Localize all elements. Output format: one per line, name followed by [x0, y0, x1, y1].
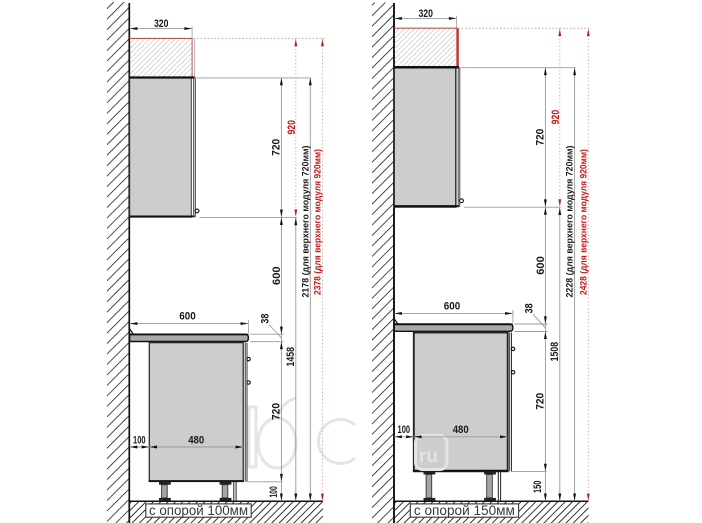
- svg-text:480: 480: [453, 424, 469, 436]
- svg-text:100: 100: [133, 434, 146, 446]
- svg-text:480: 480: [188, 434, 204, 446]
- svg-text:600: 600: [535, 256, 547, 275]
- svg-text:150: 150: [532, 481, 544, 494]
- svg-text:2428 (для верхнего модуля 920м: 2428 (для верхнего модуля 920мм): [579, 149, 589, 295]
- svg-text:38: 38: [524, 303, 536, 313]
- svg-text:720: 720: [534, 129, 546, 146]
- svg-text:920: 920: [550, 110, 562, 125]
- svg-text:2378 (для верхнего модуля 920м: 2378 (для верхнего модуля 920мм): [313, 149, 323, 295]
- svg-text:720: 720: [270, 403, 282, 420]
- svg-text:600: 600: [179, 311, 196, 323]
- svg-text:2178 (для верхнего модуля 720м: 2178 (для верхнего модуля 720мм): [300, 146, 310, 298]
- svg-text:320: 320: [418, 8, 433, 20]
- svg-text:100: 100: [398, 424, 411, 436]
- svg-text:с опорой 100мм: с опорой 100мм: [149, 502, 248, 518]
- svg-text:38: 38: [260, 314, 272, 324]
- svg-text:ru: ru: [419, 446, 438, 467]
- svg-text:920: 920: [286, 120, 298, 135]
- svg-text:1458: 1458: [285, 347, 297, 367]
- svg-text:320: 320: [154, 18, 169, 30]
- svg-text:100: 100: [268, 486, 280, 498]
- svg-text:720: 720: [534, 393, 546, 410]
- svg-text:600: 600: [271, 266, 283, 285]
- svg-text:2228 (для верхнего модуля 720м: 2228 (для верхнего модуля 720мм): [565, 146, 575, 298]
- svg-text:600: 600: [444, 300, 461, 312]
- svg-text:1508: 1508: [549, 342, 561, 362]
- svg-text:720: 720: [270, 139, 282, 156]
- svg-text:с опорой 150мм: с опорой 150мм: [414, 502, 515, 518]
